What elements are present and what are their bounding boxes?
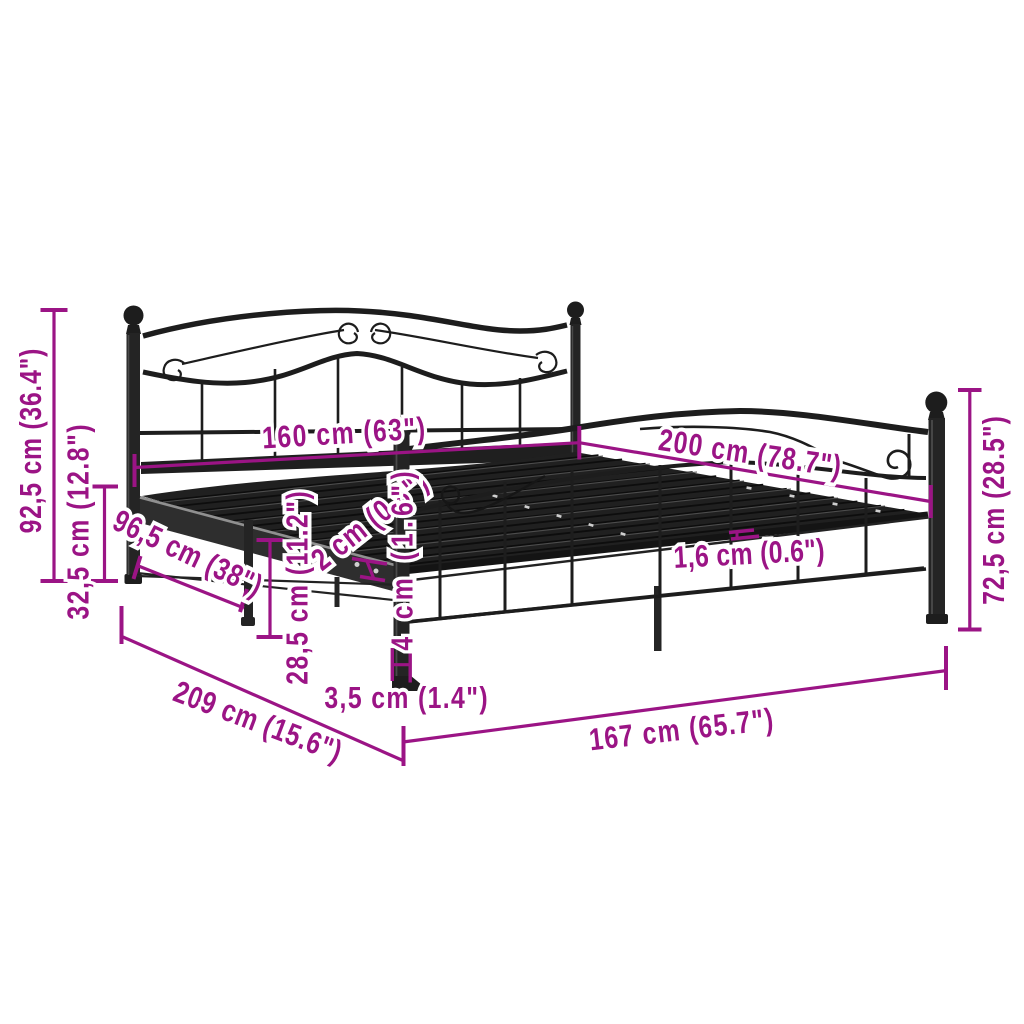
svg-text:3,5 cm (1.4"): 3,5 cm (1.4") (324, 680, 487, 714)
svg-text:92,5 cm (36.4"): 92,5 cm (36.4") (13, 349, 47, 534)
svg-text:72,5 cm (28.5"): 72,5 cm (28.5") (976, 416, 1010, 605)
svg-text:28,5 cm (11.2"): 28,5 cm (11.2") (280, 491, 314, 685)
